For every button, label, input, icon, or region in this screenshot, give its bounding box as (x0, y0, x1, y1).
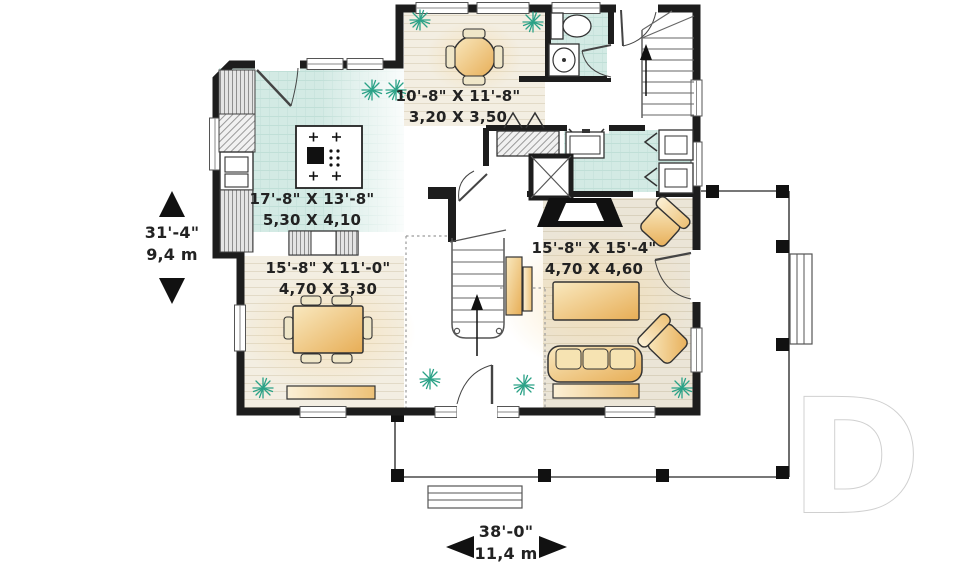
storage-closet-x (531, 156, 571, 198)
width-imperial: 38'-0" (475, 521, 538, 543)
plant-icon (362, 80, 382, 100)
chair (463, 29, 485, 38)
breakfast-table (453, 36, 495, 78)
dining-room-dimensions: 15'-8" X 11'-0" 4,70 X 3,30 (266, 258, 391, 299)
stairs-main-up-arrow-icon (471, 294, 483, 356)
porch-steps-right (790, 254, 812, 344)
arrow-down-icon (159, 278, 185, 304)
floor-plan-page: D 10'-8" X 11'-8" 3,20 X 3,50 17'-8" X 1… (0, 0, 960, 569)
toilet (551, 13, 591, 39)
kitchen-stove (220, 152, 253, 190)
kitchen-dimensions: 17'-8" X 13'-8" 5,30 X 4,10 (250, 189, 375, 230)
plant-icon (420, 369, 440, 389)
front-door-opening (457, 406, 497, 419)
cooktop (307, 147, 324, 164)
breakfast-nook-dimensions: 10'-8" X 11'-8" 3,20 X 3,50 (396, 86, 521, 127)
stair-landing-door-opening (616, 2, 658, 15)
sofa (548, 346, 642, 382)
depth-metric: 9,4 m (145, 244, 199, 266)
stair-landing-door (621, 10, 656, 46)
bath-door-opening (607, 44, 616, 78)
kitchen-corner-sink (219, 114, 255, 152)
dining-imperial: 15'-8" X 11'-0" (266, 258, 391, 279)
porch-post (538, 469, 551, 482)
console-table (553, 384, 639, 398)
kitchen-metric: 5,30 X 4,10 (250, 210, 375, 231)
overall-width-dimension: 38'-0" 11,4 m (475, 521, 538, 565)
chair (446, 46, 455, 68)
porch-post (776, 466, 789, 479)
living-metric: 4,70 X 4,60 (532, 259, 657, 280)
dining-metric: 4,70 X 3,30 (266, 279, 391, 300)
plant-icon (514, 375, 534, 395)
hanging-closet (497, 131, 559, 156)
arrow-right-icon (539, 536, 567, 558)
fireplace (537, 198, 623, 227)
kitchen-island (296, 126, 362, 188)
front-door (457, 365, 492, 404)
chair (494, 46, 503, 68)
arrow-up-icon (159, 191, 185, 217)
porch-post (776, 338, 789, 351)
kitchen-counter-lower (220, 190, 253, 252)
chair (463, 76, 485, 85)
porch-post (776, 185, 789, 198)
plant-icon (410, 10, 430, 30)
porch-post (776, 240, 789, 253)
overall-depth-dimension: 31'-4" 9,4 m (145, 222, 199, 266)
plant-icon (253, 378, 273, 398)
chair (284, 317, 293, 339)
width-metric: 11,4 m (475, 543, 538, 565)
porch-post (706, 185, 719, 198)
bathroom-sink (549, 44, 579, 76)
breakfast-imperial: 10'-8" X 11'-8" (396, 86, 521, 107)
plant-icon (523, 12, 543, 32)
dining-table (293, 306, 363, 353)
stairs-main (450, 230, 506, 356)
porch-post (656, 469, 669, 482)
stair-wall-stub-v (448, 198, 456, 242)
chair (363, 317, 372, 339)
living-room-dimensions: 15'-8" X 15'-4" 4,70 X 4,60 (532, 238, 657, 279)
chair (332, 354, 352, 363)
hall-closet-door (459, 171, 487, 201)
kitchen-imperial: 17'-8" X 13'-8" (250, 189, 375, 210)
porch-door-opening (690, 250, 703, 302)
coffee-table (553, 282, 639, 320)
dining-bench (287, 386, 375, 399)
breakfast-metric: 3,20 X 3,50 (396, 107, 521, 128)
watermark-d-logo: D (790, 366, 921, 550)
depth-imperial: 31'-4" (145, 222, 199, 244)
stairs-upper-right (640, 11, 694, 118)
arrow-left-icon (446, 536, 474, 558)
chair (301, 354, 321, 363)
stair-wall-stub-h (428, 187, 456, 199)
plant-icon (672, 378, 692, 398)
living-imperial: 15'-8" X 15'-4" (532, 238, 657, 259)
kitchen-counter-upper (219, 70, 255, 114)
porch-steps-front (428, 486, 522, 508)
sideboard (289, 231, 358, 255)
kitchen-door-opening (255, 58, 300, 71)
porch-post (391, 469, 404, 482)
